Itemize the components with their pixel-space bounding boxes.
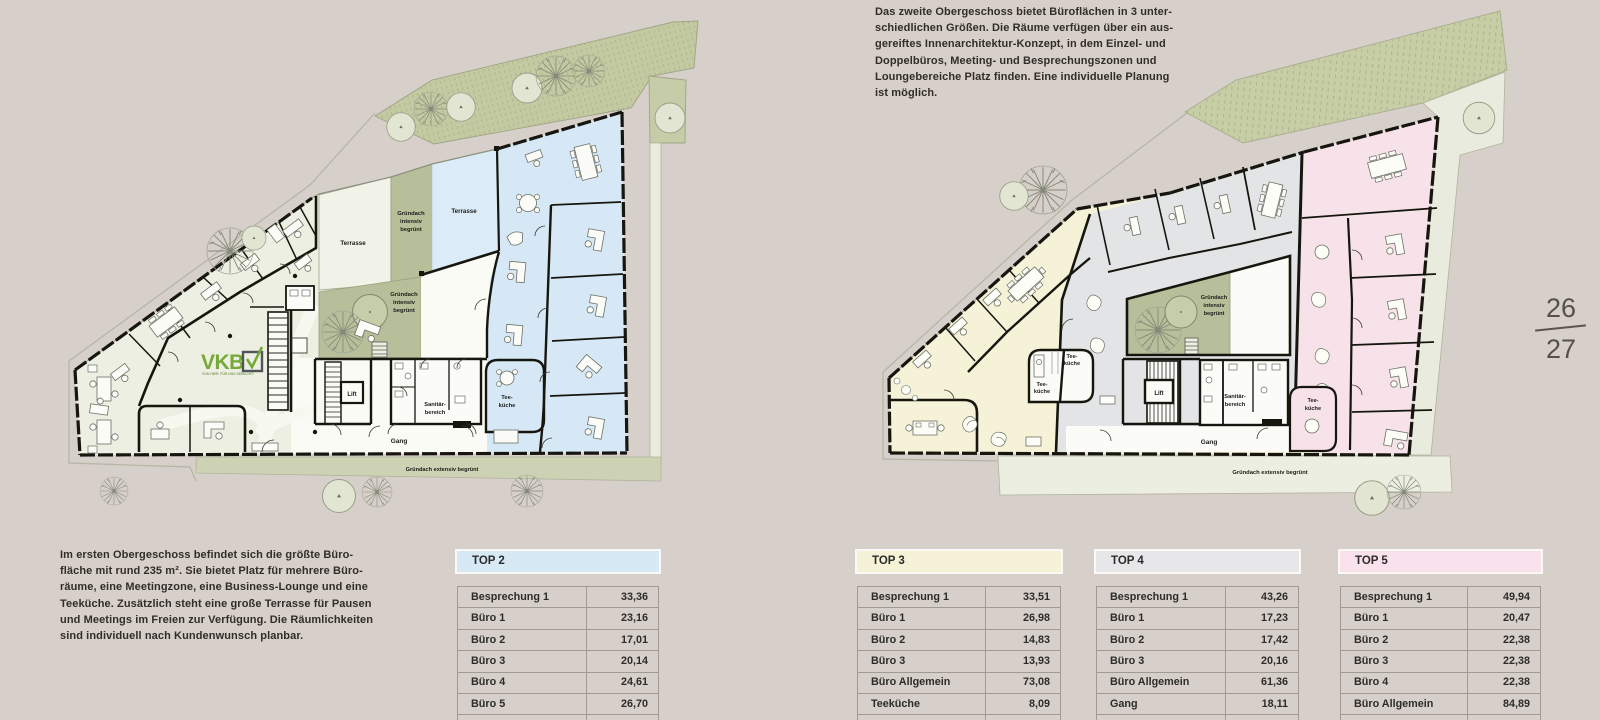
svg-text:Terrasse: Terrasse [340, 240, 366, 247]
svg-text:intensiv: intensiv [400, 219, 423, 225]
svg-text:küche: küche [1305, 406, 1321, 412]
svg-text:Tee-: Tee- [1066, 354, 1077, 360]
svg-text:küche: küche [1064, 361, 1080, 367]
svg-text:Sanitär-: Sanitär- [424, 402, 446, 408]
svg-text:Lift: Lift [1154, 391, 1163, 397]
svg-text:küche: küche [499, 403, 517, 409]
svg-text:begrünt: begrünt [1204, 311, 1225, 317]
svg-text:Gründach: Gründach [1201, 295, 1228, 301]
svg-text:intensiv: intensiv [1203, 303, 1225, 309]
svg-text:Gründach: Gründach [397, 211, 425, 217]
svg-text:Gang: Gang [391, 438, 408, 445]
svg-text:küche: küche [1034, 389, 1050, 395]
svg-text:Tee-: Tee- [501, 395, 513, 401]
svg-text:bereich: bereich [425, 410, 446, 416]
svg-text:Gang: Gang [1201, 439, 1218, 446]
svg-text:begrünt: begrünt [393, 308, 415, 314]
svg-text:begrünt: begrünt [400, 227, 422, 233]
svg-text:Lift: Lift [347, 392, 356, 398]
svg-text:Gründach extensiv begrünt: Gründach extensiv begrünt [406, 467, 479, 473]
svg-text:Sanitär-: Sanitär- [1224, 394, 1246, 400]
svg-text:intensiv: intensiv [393, 300, 416, 306]
svg-text:VKB: VKB [201, 351, 244, 374]
svg-text:Tee-: Tee- [1036, 382, 1047, 388]
svg-text:Gründach: Gründach [390, 292, 418, 298]
svg-text:VON HIER. FÜR UNS GEMACHT.: VON HIER. FÜR UNS GEMACHT. [202, 371, 254, 376]
svg-text:Gründach extensiv begrünt: Gründach extensiv begrünt [1232, 470, 1307, 476]
svg-text:Terrasse: Terrasse [451, 208, 477, 215]
svg-text:bereich: bereich [1225, 402, 1246, 408]
svg-text:Tee-: Tee- [1307, 398, 1318, 404]
